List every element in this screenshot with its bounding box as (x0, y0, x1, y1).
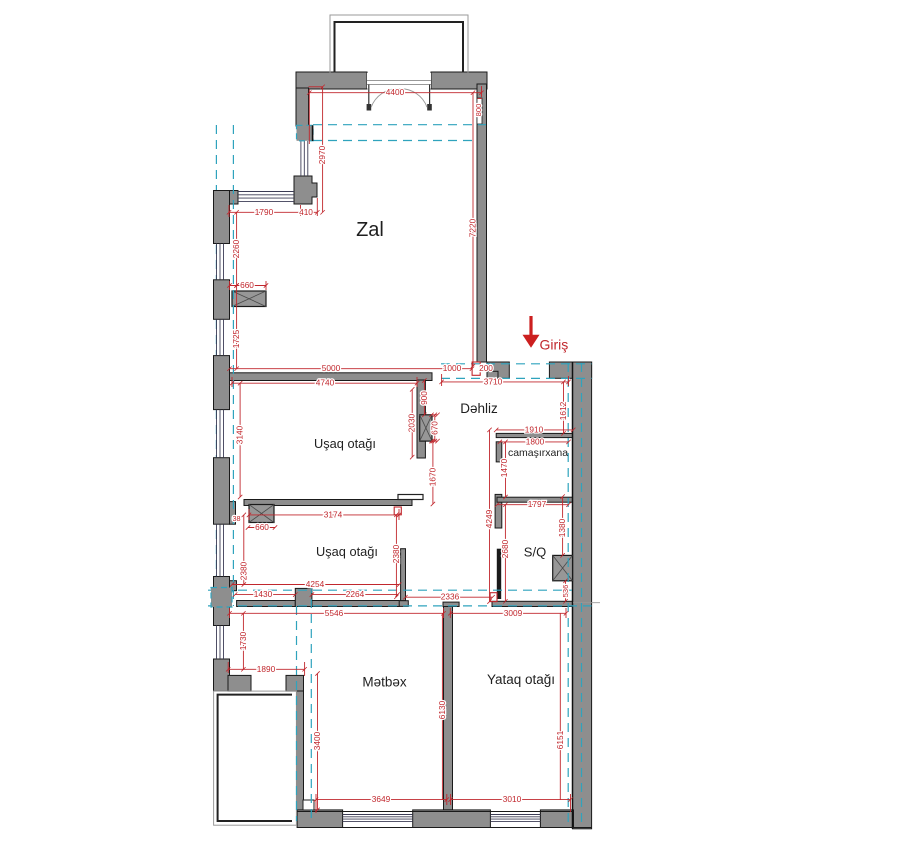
svg-text:1800: 1800 (526, 436, 545, 446)
svg-text:Uşaq otağı: Uşaq otağı (314, 436, 376, 451)
svg-text:900: 900 (419, 391, 429, 405)
svg-text:3649: 3649 (372, 794, 391, 804)
svg-text:660: 660 (240, 280, 254, 290)
svg-text:4254: 4254 (306, 579, 325, 589)
svg-text:camaşırxana: camaşırxana (508, 447, 568, 459)
svg-text:2030: 2030 (407, 413, 417, 432)
svg-text:2264: 2264 (346, 589, 365, 599)
svg-text:Dəhliz: Dəhliz (460, 401, 498, 416)
svg-text:2380: 2380 (238, 561, 248, 580)
svg-text:1430: 1430 (254, 589, 273, 599)
svg-text:Zal: Zal (356, 219, 384, 241)
svg-text:4740: 4740 (316, 378, 335, 388)
svg-text:Giriş: Giriş (540, 337, 569, 353)
svg-text:7220: 7220 (468, 218, 478, 237)
svg-text:3174: 3174 (324, 509, 343, 519)
svg-text:6151: 6151 (555, 730, 565, 749)
svg-text:38: 38 (233, 514, 241, 523)
svg-text:3140: 3140 (235, 425, 245, 444)
svg-text:1380: 1380 (557, 518, 567, 537)
svg-text:2970: 2970 (317, 145, 327, 164)
svg-text:3400: 3400 (312, 731, 322, 750)
svg-text:6130: 6130 (437, 700, 447, 719)
svg-text:1890: 1890 (257, 664, 276, 674)
svg-text:3010: 3010 (503, 794, 522, 804)
svg-text:3710: 3710 (484, 376, 503, 386)
svg-text:1730: 1730 (238, 631, 248, 650)
svg-text:1000: 1000 (443, 363, 462, 373)
svg-text:3009: 3009 (504, 608, 523, 618)
svg-text:2680: 2680 (500, 539, 510, 558)
svg-text:1910: 1910 (525, 424, 544, 434)
svg-text:536: 536 (561, 585, 570, 598)
svg-text:Mətbəx: Mətbəx (362, 675, 407, 690)
svg-text:2380: 2380 (391, 544, 401, 563)
svg-text:1670: 1670 (427, 467, 437, 486)
svg-text:2260: 2260 (231, 239, 241, 258)
svg-text:4249: 4249 (484, 509, 494, 528)
svg-text:Yataq otağı: Yataq otağı (487, 672, 555, 687)
svg-text:1797: 1797 (528, 499, 547, 509)
svg-text:2336: 2336 (441, 592, 460, 602)
svg-text:200: 200 (479, 363, 493, 373)
svg-text:5546: 5546 (325, 608, 344, 618)
svg-text:5000: 5000 (322, 363, 341, 373)
svg-text:Uşaq otağı: Uşaq otağı (316, 544, 378, 559)
svg-text:1790: 1790 (255, 207, 274, 217)
svg-text:1612: 1612 (558, 401, 568, 420)
svg-text:S/Q: S/Q (524, 545, 546, 560)
svg-text:660: 660 (255, 522, 269, 532)
svg-text:1725: 1725 (231, 329, 241, 348)
svg-text:670: 670 (429, 421, 439, 435)
svg-text:4400: 4400 (386, 87, 405, 97)
svg-text:410: 410 (299, 207, 313, 217)
svg-text:800: 800 (474, 104, 483, 117)
svg-text:1470: 1470 (499, 458, 509, 477)
